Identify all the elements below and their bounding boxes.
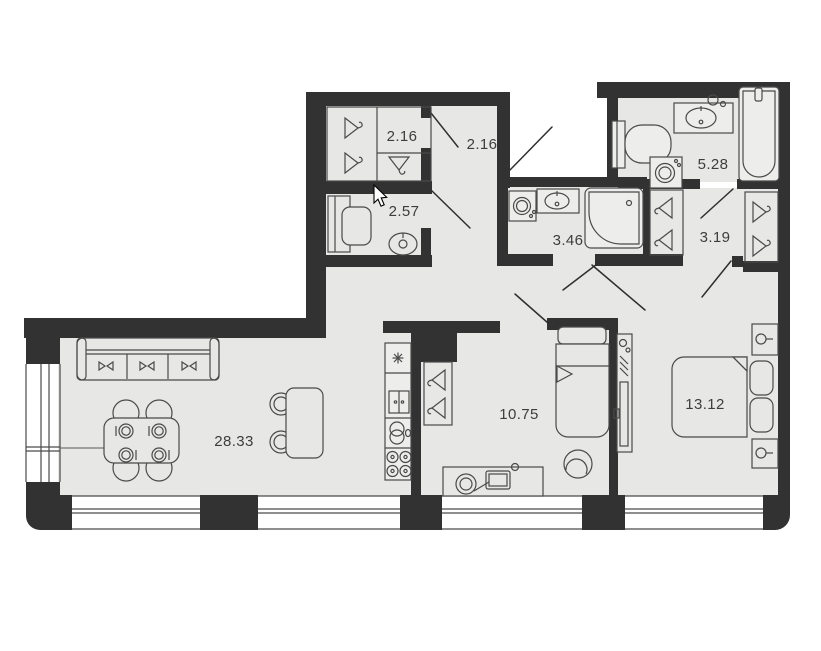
desk-chair [456,474,476,494]
pillow [750,398,773,432]
dining-table [104,418,179,463]
armchair [564,450,592,478]
chair [342,207,371,245]
room-label-wardrobe-corridor: 3.19 [700,229,731,246]
room-label-study: 2.57 [389,203,420,220]
shower-icon [585,188,643,248]
pillow [558,327,606,344]
room-label-closet: 2.16 [387,128,418,145]
floor-plan-page: 2.16 2.16 2.57 5.28 3.46 3.19 28.33 10.7… [0,0,821,651]
room-label-shower-room: 3.46 [553,232,584,249]
window-bottom-2 [258,496,400,529]
floor-plan-canvas: 2.16 2.16 2.57 5.28 3.46 3.19 28.33 10.7… [0,0,821,651]
pillow [750,361,773,395]
nightstand [752,439,778,468]
nightstand [752,324,778,355]
kitchen-units [385,343,411,480]
window-bottom-3 [442,496,582,529]
toilet-icon [389,233,417,255]
bathtub-icon [739,87,779,181]
room-label-entrance-hall: 2.16 [467,136,498,153]
desk [443,464,543,497]
sofa [77,338,219,380]
room-label-bathroom: 5.28 [698,156,729,173]
window-bottom-1 [72,496,200,529]
tap-icon [755,88,762,101]
door-entrance [510,127,552,170]
washing-machine-icon [650,157,682,188]
room-label-living-kitchen: 28.33 [214,433,254,450]
washing-machine-icon [509,191,536,221]
window-bottom-4 [625,496,763,529]
room-label-bedroom-small: 10.75 [499,406,539,423]
room-label-bedroom-master: 13.12 [685,396,725,413]
sink-icon [537,189,579,213]
freezer-icon [393,353,404,364]
tv-stand [614,334,632,452]
single-bed [556,327,609,437]
